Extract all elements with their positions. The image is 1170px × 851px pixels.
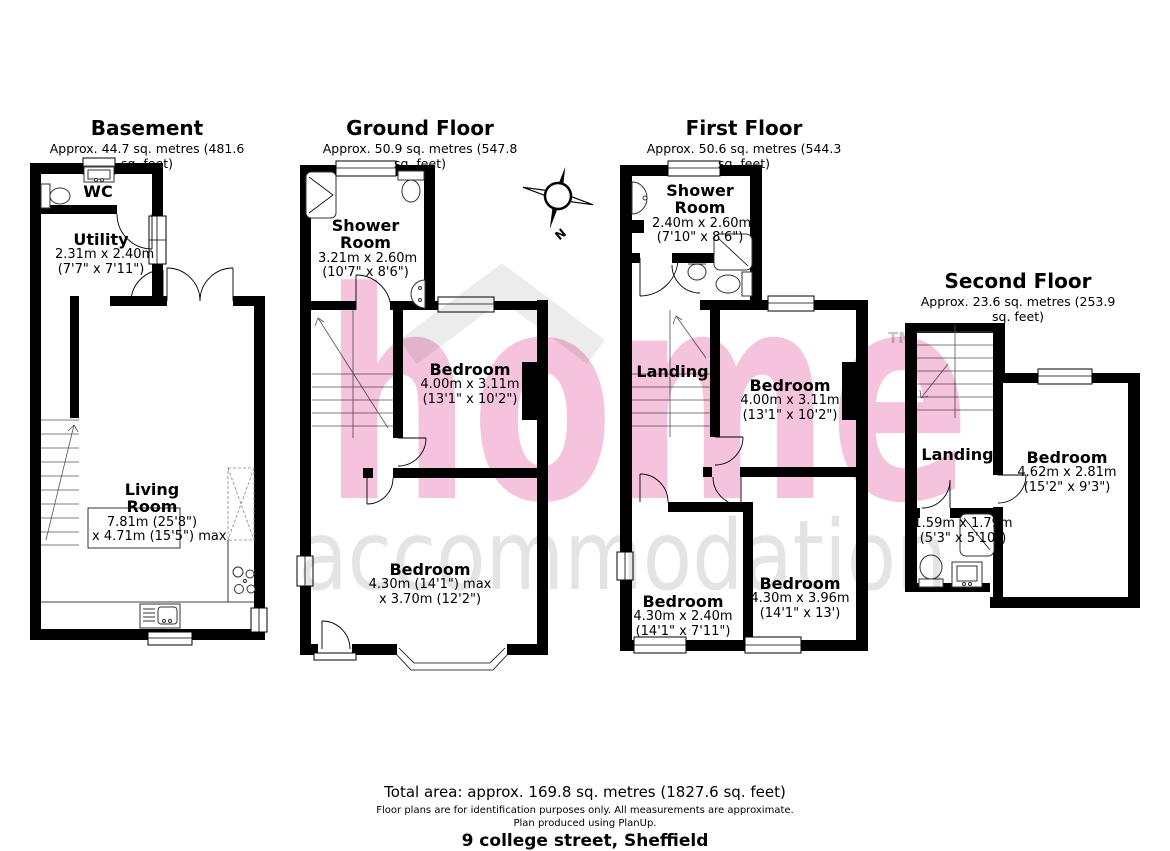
sink-icon <box>688 264 706 280</box>
hob-icon <box>233 567 255 594</box>
stairs <box>41 420 79 545</box>
second-floor-title-block: Second Floor Approx. 23.6 sq. metres (25… <box>918 270 1118 324</box>
floor-title: First Floor <box>644 117 844 139</box>
sink-icon <box>632 182 647 214</box>
address-text: 9 college street, Sheffield <box>0 831 1170 851</box>
room-label-living-room: Living Room 7.81m (25'8") x 4.71m (15'5"… <box>92 481 212 545</box>
toilet-icon <box>41 184 70 208</box>
compass-north-label: N <box>552 226 569 243</box>
compass-icon: N <box>520 162 596 244</box>
room-label-bedroom: Bedroom 4.30m x 3.96m (14'1" x 13') <box>745 575 855 622</box>
floor-title: Second Floor <box>918 270 1118 292</box>
room-label-shower-room: Shower Room 3.21m x 2.60m (10'7" x 8'6") <box>318 217 413 281</box>
floor-title: Ground Floor <box>320 117 520 139</box>
room-label-bedroom: Bedroom 4.00m x 3.11m (13'1" x 10'2") <box>415 361 525 408</box>
room-label-bedroom: Bedroom 4.30m x 2.40m (14'1" x 7'11") <box>628 593 738 640</box>
floorplan-document: N Basement Approx. 44.7 sq. metres (481.… <box>0 0 1170 851</box>
window <box>1038 369 1092 384</box>
sink-icon <box>952 562 982 587</box>
door <box>922 475 1026 508</box>
toilet-icon <box>716 272 752 296</box>
total-area-text: Total area: approx. 169.8 sq. metres (18… <box>0 783 1170 801</box>
stairs <box>917 325 993 418</box>
disclaimer-text: Floor plans are for identification purpo… <box>0 805 1170 816</box>
kitchen-sink-icon <box>140 604 180 628</box>
toilet-icon <box>919 555 943 587</box>
floor-area: Approx. 23.6 sq. metres (253.9 sq. feet) <box>918 294 1118 324</box>
first-floor-title-block: First Floor Approx. 50.6 sq. metres (544… <box>644 117 844 171</box>
ground-floor-title-block: Ground Floor Approx. 50.9 sq. metres (54… <box>320 117 520 171</box>
floor-title: Basement <box>47 117 247 139</box>
basement-title-block: Basement Approx. 44.7 sq. metres (481.6 … <box>47 117 247 171</box>
room-label-bedroom: Bedroom 4.00m x 3.11m (13'1" x 10'2") <box>735 377 845 424</box>
door <box>640 258 743 505</box>
room-label-utility: Utility 2.31m x 2.40m (7'7" x 7'11") <box>55 231 147 278</box>
room-label-shower: 1.59m x 1.79m (5'3" x 5'10") <box>901 517 1025 547</box>
floor-area: Approx. 50.6 sq. metres (544.3 sq. feet) <box>644 141 844 171</box>
room-label-shower-room: Shower Room 2.40m x 2.60m (7'10" x 8'6") <box>652 182 748 246</box>
shower-icon <box>306 172 336 218</box>
bay-window <box>397 648 507 670</box>
stairs <box>312 310 393 438</box>
room-label-landing: Landing <box>915 446 1000 463</box>
producer-text: Plan produced using PlanUp. <box>0 818 1170 829</box>
floor-area: Approx. 44.7 sq. metres (481.6 sq. feet) <box>47 141 247 171</box>
toilet-icon <box>398 171 424 202</box>
room-label-bedroom: Bedroom 4.62m x 2.81m (15'2" x 9'3") <box>1012 449 1122 496</box>
room-label-landing: Landing <box>630 363 715 380</box>
room-label-bedroom: Bedroom 4.30m (14'1") max x 3.70m (12'2"… <box>352 561 508 608</box>
floor-area: Approx. 50.9 sq. metres (547.8 sq. feet) <box>320 141 520 171</box>
room-label-wc: WC <box>70 183 126 200</box>
